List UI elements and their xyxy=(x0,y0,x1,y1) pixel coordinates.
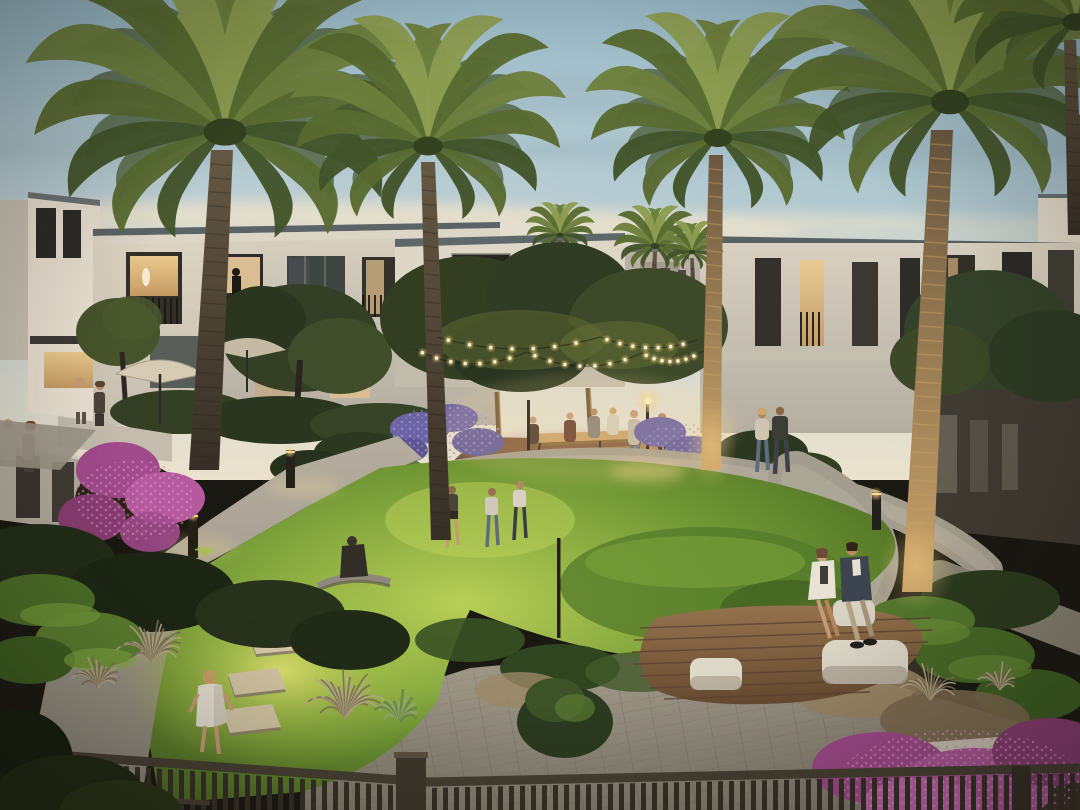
vignette xyxy=(0,0,1080,810)
courtyard-rendering xyxy=(0,0,1080,810)
scene-canvas xyxy=(0,0,1080,810)
